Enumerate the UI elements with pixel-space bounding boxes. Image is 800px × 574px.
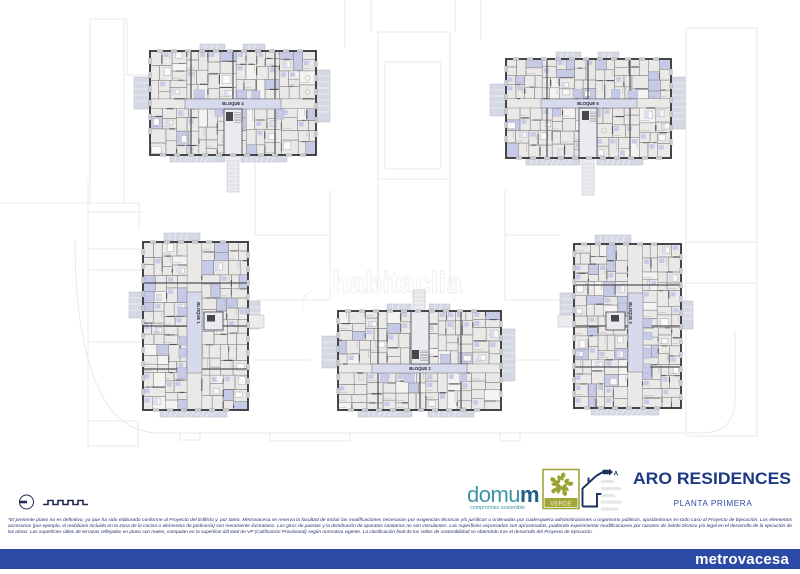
svg-text:BLOQUE 2: BLOQUE 2 xyxy=(409,366,431,371)
svg-text:VERDE: VERDE xyxy=(550,501,572,508)
svg-text:las obras. Las superficies úti: las obras. Las superficies útiles de ter… xyxy=(8,529,593,534)
svg-text:*El presente plano no es defin: *El presente plano no es definitivo, ya … xyxy=(8,517,793,522)
svg-text:BLOQUE 1: BLOQUE 1 xyxy=(196,302,201,324)
svg-text:BLOQUE 4: BLOQUE 4 xyxy=(222,101,244,106)
svg-text:ARO RESIDENCES: ARO RESIDENCES xyxy=(633,470,791,488)
svg-text:A: A xyxy=(614,471,619,478)
svg-text:domum: domum xyxy=(467,482,539,507)
svg-text:metrovacesa: metrovacesa xyxy=(695,551,789,568)
svg-text:accesorios (por ejemplo, el mo: accesorios (por ejemplo, el mobiliario i… xyxy=(8,523,792,528)
svg-text:habitaclia: habitaclia xyxy=(332,265,463,300)
svg-text:compromiso sostenible: compromiso sostenible xyxy=(470,505,525,511)
svg-text:BLOQUE 5: BLOQUE 5 xyxy=(577,101,599,106)
svg-text:BLOQUE 3: BLOQUE 3 xyxy=(628,302,633,324)
svg-text:PLANTA PRIMERA: PLANTA PRIMERA xyxy=(674,499,753,508)
